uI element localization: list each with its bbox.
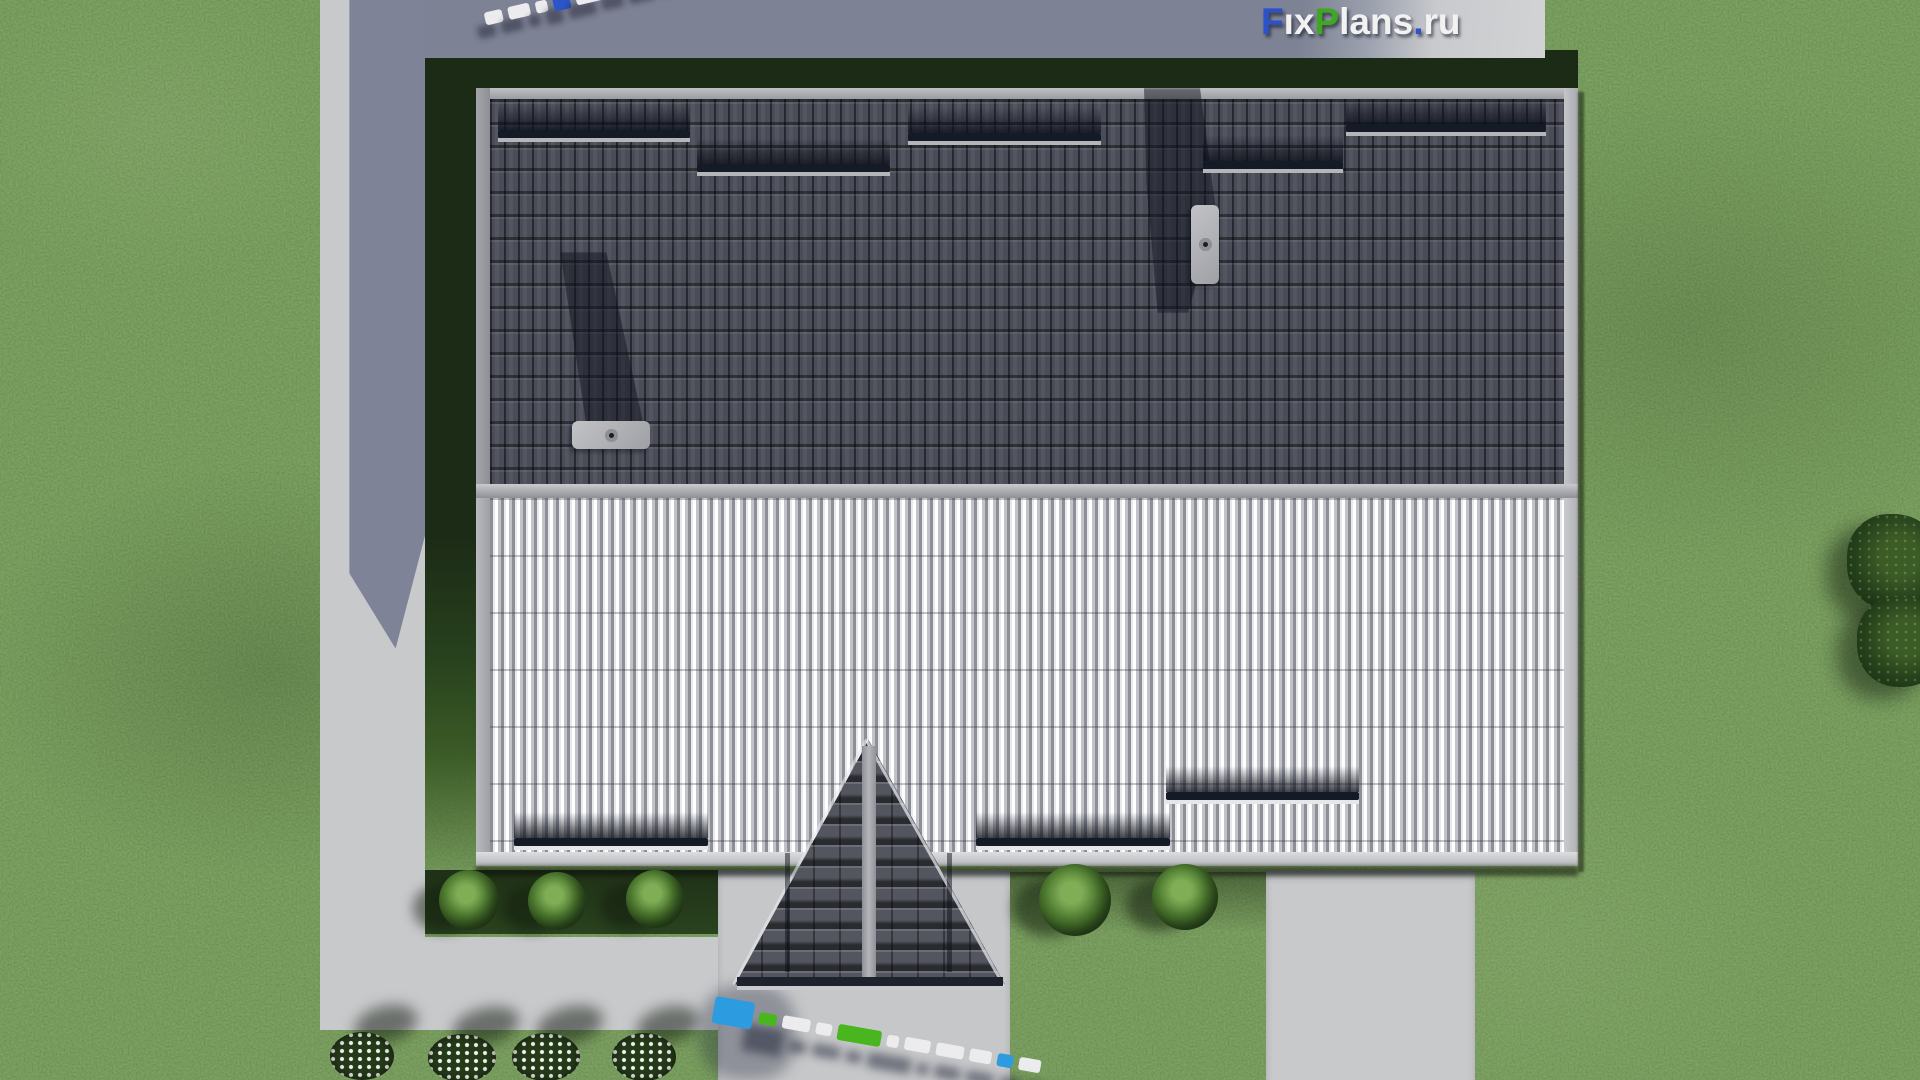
snow-guard-rail <box>976 838 1170 846</box>
snow-guard-shadow <box>976 812 1170 838</box>
logo-letter: . <box>1413 1 1423 42</box>
watermark-block <box>904 1037 932 1054</box>
snow-guard-rail <box>1346 124 1546 132</box>
snow-guard-rail <box>514 838 708 846</box>
chimney-cap <box>1191 205 1219 284</box>
logo-letter: P <box>1314 1 1339 42</box>
watermark-block <box>484 9 504 26</box>
snow-guard-base-line <box>697 172 890 176</box>
snow-guard-shadow <box>498 104 690 130</box>
roof-fascia-left-lower <box>476 498 490 852</box>
flower-bed <box>612 1033 676 1080</box>
bush <box>626 870 684 928</box>
watermark-block <box>935 1042 965 1060</box>
porch-gable-batten <box>947 853 952 971</box>
watermark-block <box>815 1022 833 1037</box>
snow-guard-bar <box>498 104 690 142</box>
bush <box>528 872 586 930</box>
snow-guard-rail <box>697 164 890 172</box>
watermark-block <box>886 1034 900 1048</box>
snow-guard-base-line <box>976 846 1170 850</box>
snow-guard-bar <box>697 138 890 176</box>
porch-gable-eave <box>737 977 1003 986</box>
watermark-block <box>969 1048 993 1065</box>
snow-guard-base-line <box>1346 132 1546 136</box>
flower-bed <box>512 1033 580 1080</box>
watermark-block <box>507 3 531 21</box>
logo-letter: ru <box>1423 1 1460 42</box>
snow-guard-bar <box>1203 135 1343 173</box>
chimney-cap <box>572 421 650 449</box>
snow-guard-shadow <box>1346 98 1546 124</box>
shadow-grass-strip-left <box>425 55 478 885</box>
snow-guard-rail <box>1166 792 1359 800</box>
fixplans-logo: FıxPlans.ru <box>1261 2 1460 42</box>
snow-guard-shadow <box>697 138 890 164</box>
watermark-block <box>758 1012 778 1027</box>
snow-guard-shadow <box>1203 135 1343 161</box>
watermark-block <box>711 996 755 1030</box>
bush <box>439 870 499 930</box>
house-shadow-on-walkway <box>320 0 425 940</box>
logo-letter: x <box>1294 1 1315 42</box>
roof-dark-tile-slope <box>490 99 1564 484</box>
flower-bed <box>428 1034 496 1080</box>
snow-guard-rail <box>498 130 690 138</box>
bush <box>1152 864 1218 930</box>
roof-eave <box>476 852 1578 866</box>
logo-letter: F <box>1261 1 1284 42</box>
snow-guard-base-line <box>1166 800 1359 804</box>
roof-fascia-right-upper <box>1564 88 1578 484</box>
porch-gable-eave-line <box>737 986 1003 990</box>
porch-gable-batten <box>785 853 790 971</box>
flower-bed <box>330 1032 394 1080</box>
chimney-pipe-icon <box>605 429 618 442</box>
watermark-block <box>1018 1057 1042 1074</box>
walkway-left <box>320 0 425 940</box>
roof-edge-shadow-right <box>1578 92 1584 872</box>
roof-ridge <box>476 484 1578 498</box>
roof-fascia-right-lower <box>1564 498 1578 852</box>
snow-guard-bar <box>1166 766 1359 804</box>
chimney-pipe-icon <box>1199 238 1212 251</box>
snow-guard-bar <box>1346 98 1546 136</box>
watermark-block <box>574 0 604 5</box>
snow-guard-rail <box>908 133 1101 141</box>
logo-letter: ı <box>1284 2 1294 42</box>
snow-guard-bar <box>976 812 1170 850</box>
snow-guard-base-line <box>498 138 690 142</box>
porch-gable <box>735 740 1005 992</box>
snow-guard-base-line <box>514 846 708 850</box>
watermark-block <box>836 1024 882 1047</box>
roof-ribbed-metal-slope <box>490 498 1564 852</box>
driveway <box>1266 870 1475 1080</box>
watermark-block <box>552 0 572 11</box>
watermark-block <box>534 0 548 14</box>
snow-guard-base-line <box>908 141 1101 145</box>
snow-guard-shadow <box>514 812 708 838</box>
snow-guard-shadow <box>908 107 1101 133</box>
snow-guard-shadow <box>1166 766 1359 792</box>
tree <box>1847 514 1920 610</box>
aerial-render-scene: FıxPlans.ru <box>0 0 1920 1080</box>
bush <box>1039 864 1111 936</box>
snow-guard-base-line <box>1203 169 1343 173</box>
logo-letter: lans <box>1339 1 1413 42</box>
watermark-block <box>781 1015 811 1033</box>
snow-guard-rail <box>1203 161 1343 169</box>
watermark-block <box>996 1053 1014 1069</box>
porch-gable-ridge <box>862 746 876 984</box>
roof-fascia-left-upper <box>476 88 490 484</box>
snow-guard-bar <box>514 812 708 850</box>
snow-guard-bar <box>908 107 1101 145</box>
